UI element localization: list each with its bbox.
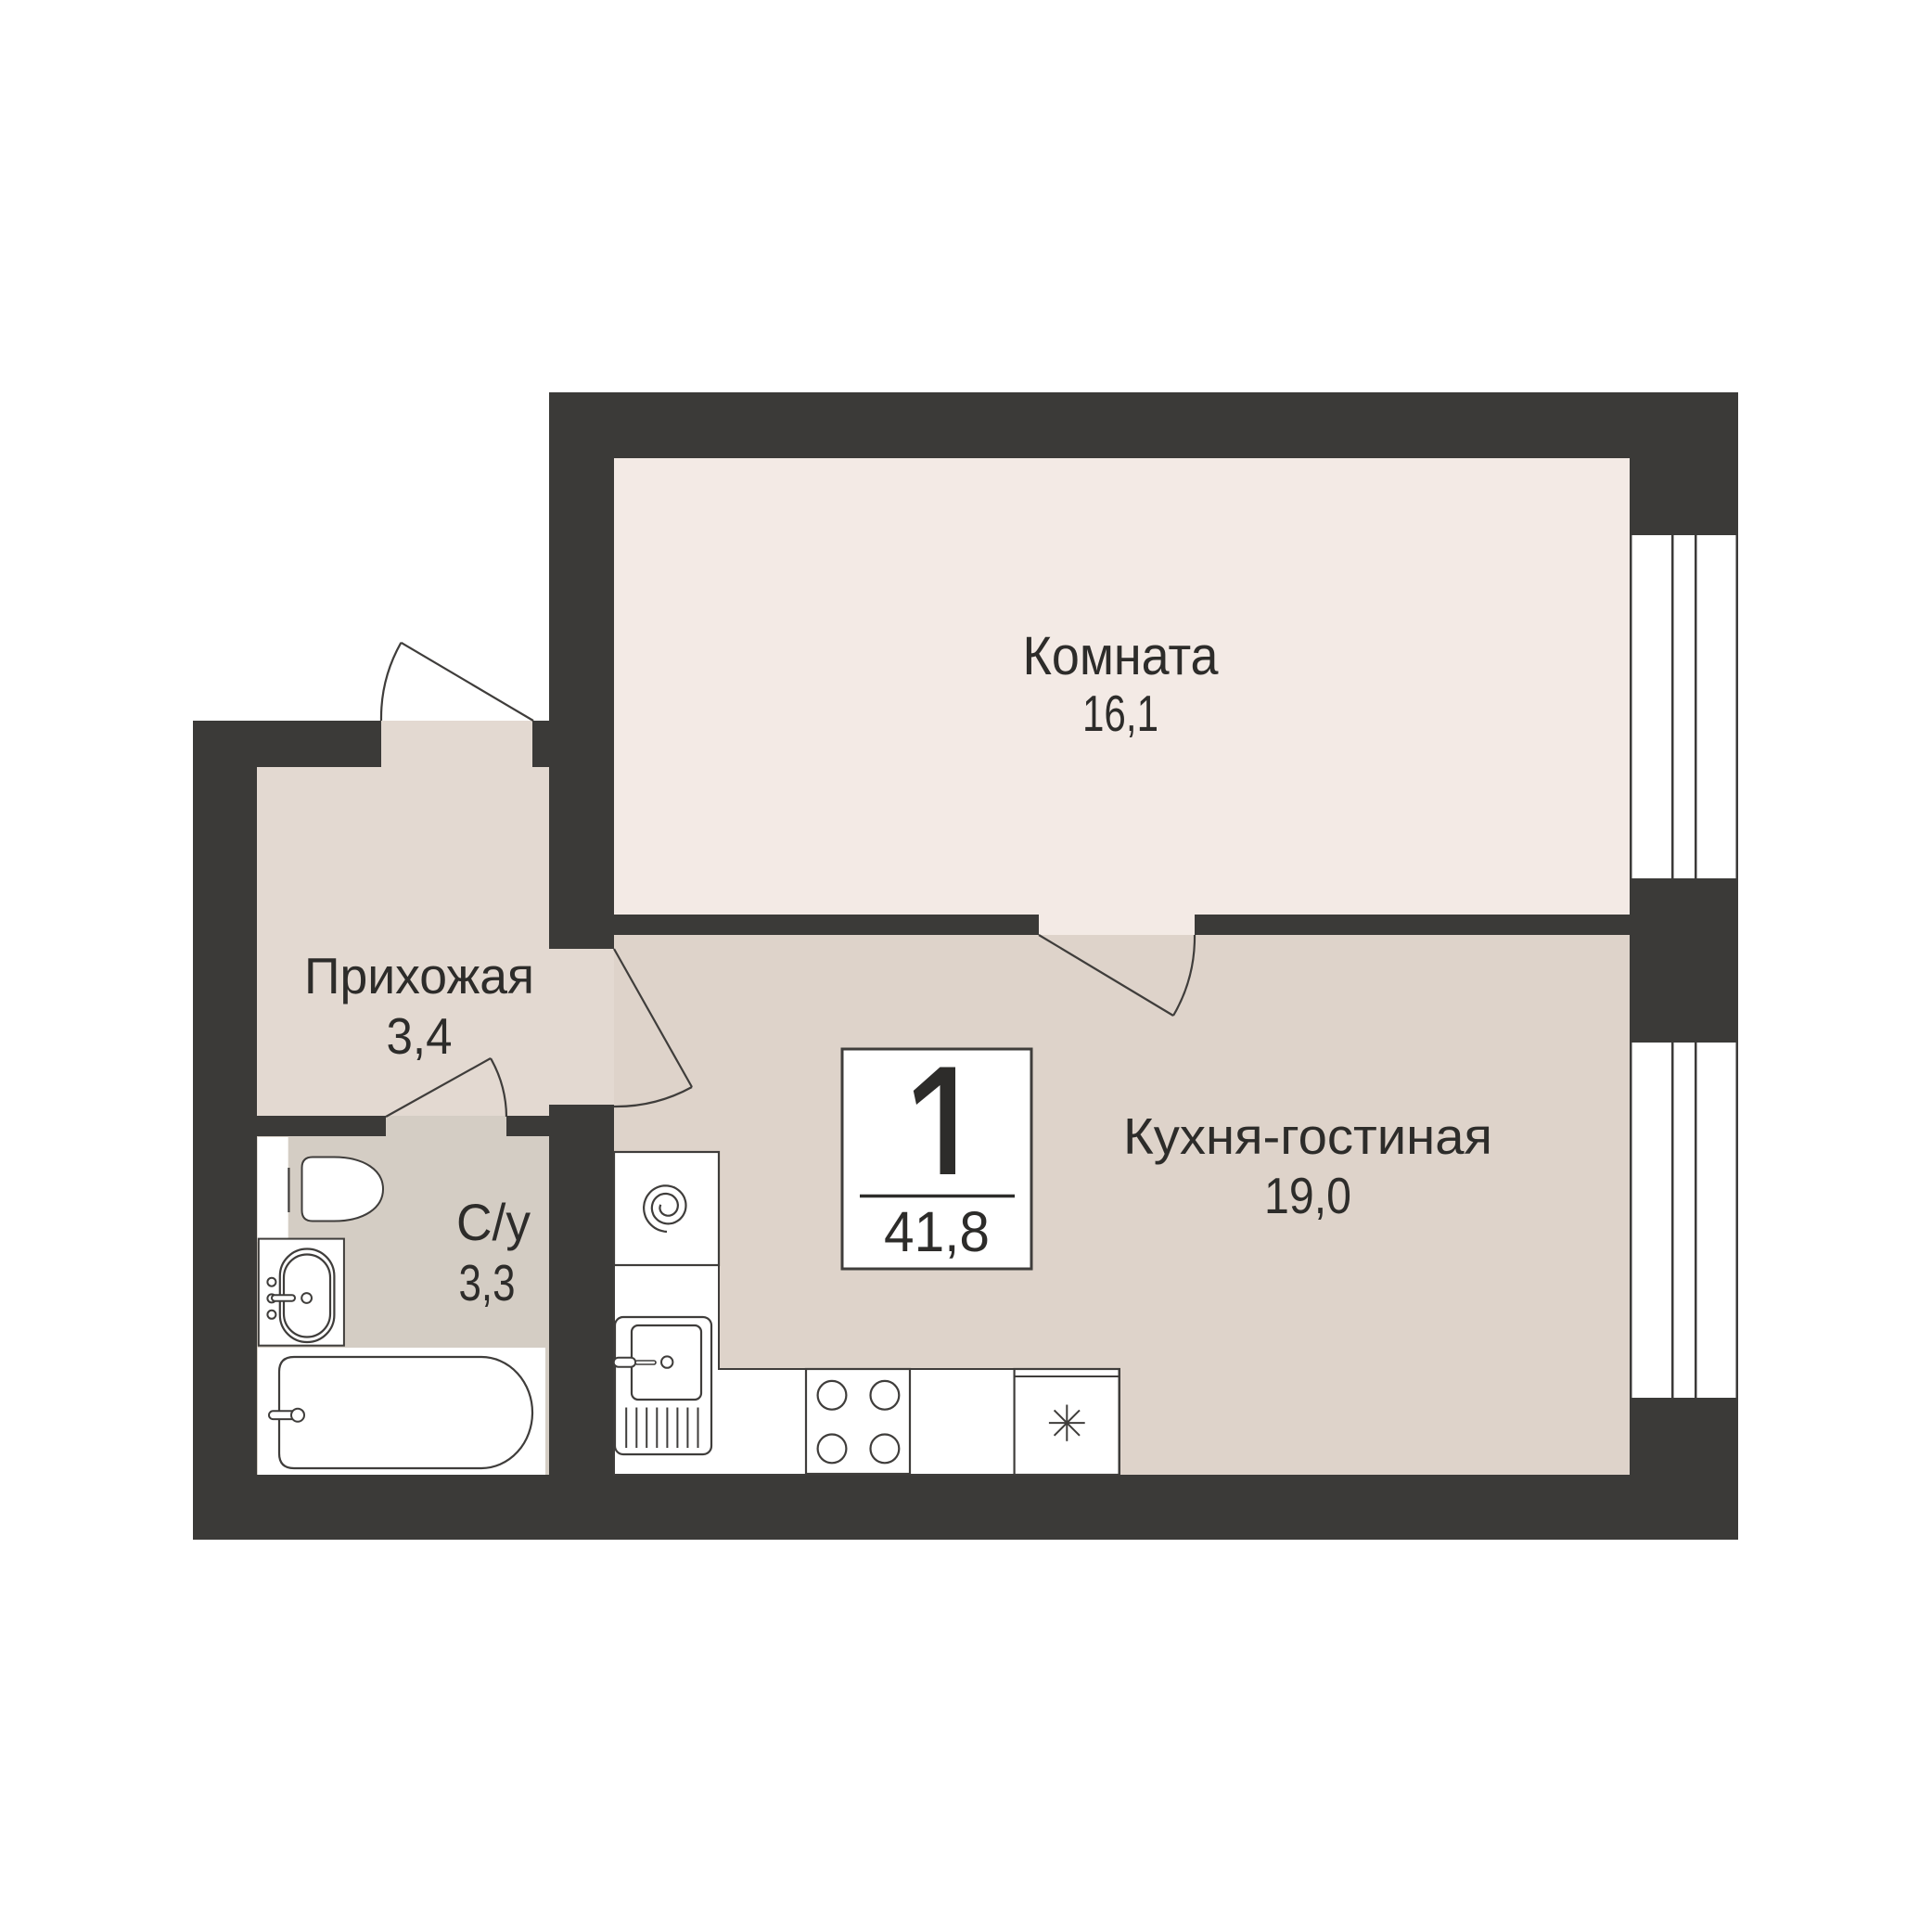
svg-text:С/у: С/у — [456, 1193, 531, 1251]
svg-text:3,3: 3,3 — [459, 1254, 516, 1311]
svg-text:41,8: 41,8 — [884, 1200, 990, 1263]
svg-text:Кухня-гостиная: Кухня-гостиная — [1123, 1107, 1492, 1165]
svg-text:16,1: 16,1 — [1082, 685, 1158, 742]
svg-text:3,4: 3,4 — [387, 1007, 453, 1065]
svg-text:Комната: Комната — [1023, 626, 1220, 686]
svg-text:19,0: 19,0 — [1264, 1167, 1351, 1224]
svg-text:Прихожая: Прихожая — [304, 947, 534, 1004]
